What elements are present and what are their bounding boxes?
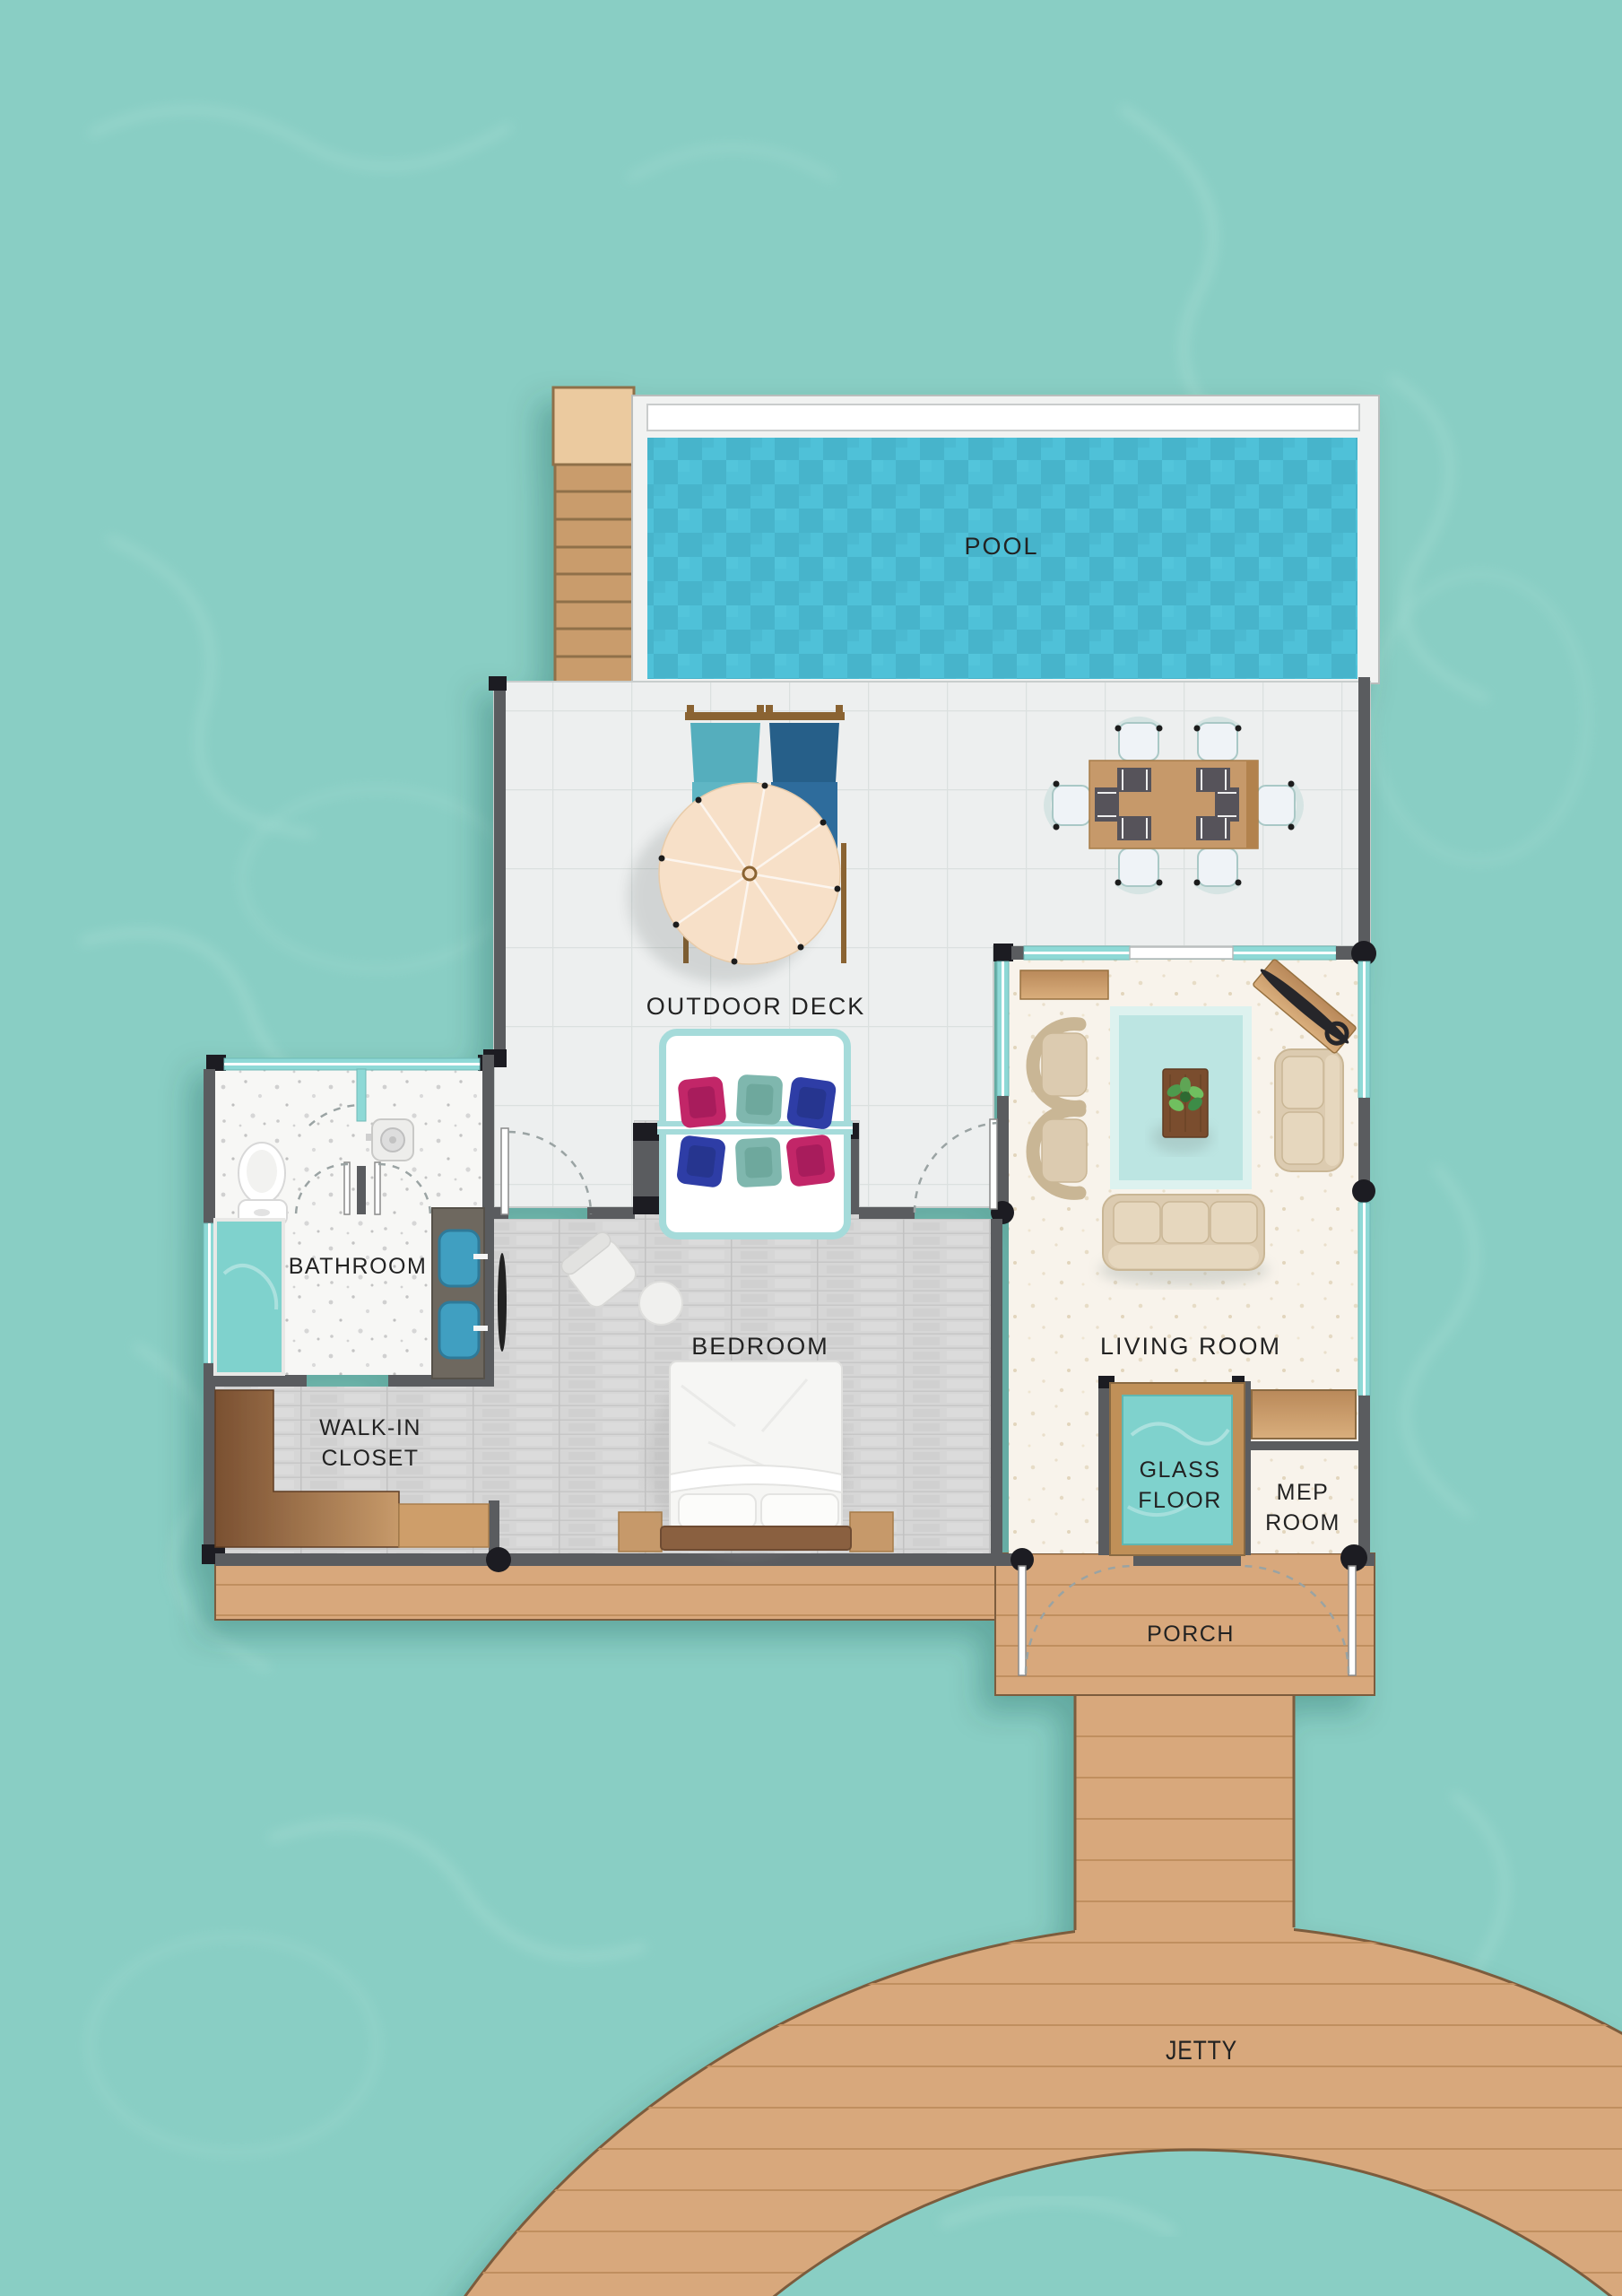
window — [1024, 946, 1130, 960]
wall — [204, 1069, 215, 1223]
pool-ladder-steps — [555, 465, 634, 683]
label-glass-floor-line2: FLOOR — [1138, 1488, 1222, 1513]
label-glass-floor-line1: GLASS — [1140, 1457, 1221, 1483]
window — [1358, 961, 1370, 1098]
dining-chair — [1194, 720, 1242, 761]
wall — [991, 1219, 1002, 1553]
door-leaf — [990, 1119, 997, 1209]
sofa-two-seat — [1275, 1049, 1343, 1171]
pillar — [1352, 1179, 1375, 1203]
wall — [587, 1207, 635, 1219]
pool-infinity-edge — [647, 404, 1359, 430]
window — [1358, 1203, 1370, 1396]
dining-chair — [1115, 848, 1163, 891]
vanity-double-sink — [432, 1208, 488, 1378]
door-leaf — [1019, 1566, 1026, 1675]
full-length-mirror — [498, 1253, 507, 1352]
label-porch: PORCH — [1147, 1622, 1235, 1647]
bed-pillow — [761, 1494, 838, 1528]
wall — [204, 1375, 307, 1387]
window — [1233, 946, 1336, 960]
label-bedroom: BEDROOM — [691, 1333, 829, 1360]
toilet-icon — [239, 1143, 287, 1225]
glass-partition — [357, 1069, 366, 1121]
wall-post — [206, 1055, 226, 1071]
dining-chair — [1047, 781, 1090, 831]
wall — [1011, 946, 1024, 960]
wall — [1358, 1396, 1370, 1553]
label-outdoor-deck: OUTDOOR DECK — [646, 993, 866, 1020]
bed-pillow — [679, 1494, 756, 1528]
pillar — [486, 1547, 511, 1572]
nightstand — [619, 1512, 662, 1552]
nightstand — [850, 1512, 893, 1552]
dining-chair — [1257, 781, 1300, 831]
daybed — [657, 1032, 853, 1236]
storage-cabinet — [1252, 1390, 1356, 1439]
wall — [204, 1363, 215, 1553]
wall — [1358, 1098, 1370, 1184]
dining-chair — [1115, 720, 1163, 761]
dining-chair — [1194, 848, 1242, 891]
wall — [357, 1166, 366, 1214]
label-walk-in-closet-line2: CLOSET — [321, 1446, 419, 1471]
wall — [1358, 677, 1370, 952]
floor-plan-page: POOL OUTDOOR DECK BATHROOM WALK-IN CLOSE… — [0, 0, 1622, 2296]
wall-post — [633, 1196, 660, 1214]
wall — [489, 1500, 499, 1553]
wall — [215, 1553, 1026, 1566]
closet-bench — [399, 1504, 489, 1547]
door-leaf — [501, 1128, 508, 1214]
console-table — [1020, 970, 1108, 999]
door-leaf — [344, 1162, 350, 1214]
label-mep-room-line1: MEP — [1277, 1480, 1330, 1505]
label-mep-room-line2: ROOM — [1265, 1510, 1340, 1535]
sliding-door — [1130, 947, 1233, 959]
side-table — [639, 1282, 682, 1325]
wall-post — [993, 944, 1013, 961]
window — [997, 961, 1009, 1096]
wall — [997, 1096, 1009, 1213]
window — [224, 1058, 480, 1070]
dining-table-edge — [1246, 761, 1258, 848]
wall — [1098, 1381, 1110, 1555]
wall — [494, 682, 506, 1055]
wall — [1239, 1441, 1358, 1450]
label-living-room: LIVING ROOM — [1100, 1333, 1281, 1360]
floor-plan: POOL OUTDOOR DECK BATHROOM WALK-IN CLOSE… — [0, 0, 1622, 2296]
label-bathroom: BATHROOM — [289, 1254, 428, 1279]
wall-post — [633, 1123, 660, 1141]
door-leaf — [375, 1162, 380, 1214]
headboard — [661, 1526, 851, 1550]
bathtub — [215, 1220, 283, 1374]
door-leaf — [1349, 1566, 1356, 1675]
label-walk-in-closet-line1: WALK-IN — [319, 1415, 421, 1440]
pool-ladder-landing — [553, 387, 634, 465]
wall — [859, 1207, 915, 1219]
bed — [647, 1361, 851, 1559]
label-jetty: JETTY — [1166, 2036, 1237, 2066]
shower-icon — [366, 1119, 413, 1161]
label-pool: POOL — [964, 533, 1038, 560]
wall-post — [489, 676, 507, 691]
sofa-three-seat — [1098, 1195, 1269, 1286]
